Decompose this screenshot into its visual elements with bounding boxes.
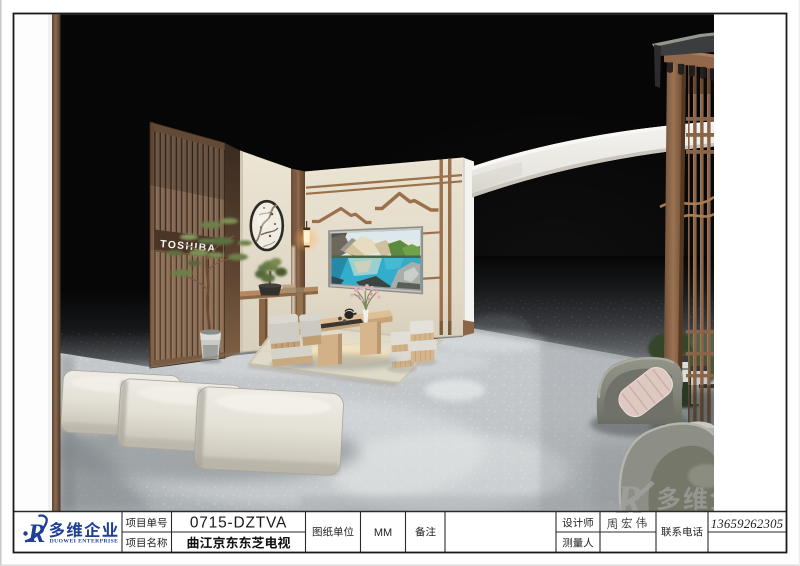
svg-text:R: R xyxy=(27,519,45,548)
svg-text:MM: MM xyxy=(374,527,392,539)
svg-text:13659262305: 13659262305 xyxy=(711,517,784,531)
svg-text:DUOWEI ENTERPRISE: DUOWEI ENTERPRISE xyxy=(50,539,119,545)
svg-text:0715-DZTVA: 0715-DZTVA xyxy=(190,515,287,532)
